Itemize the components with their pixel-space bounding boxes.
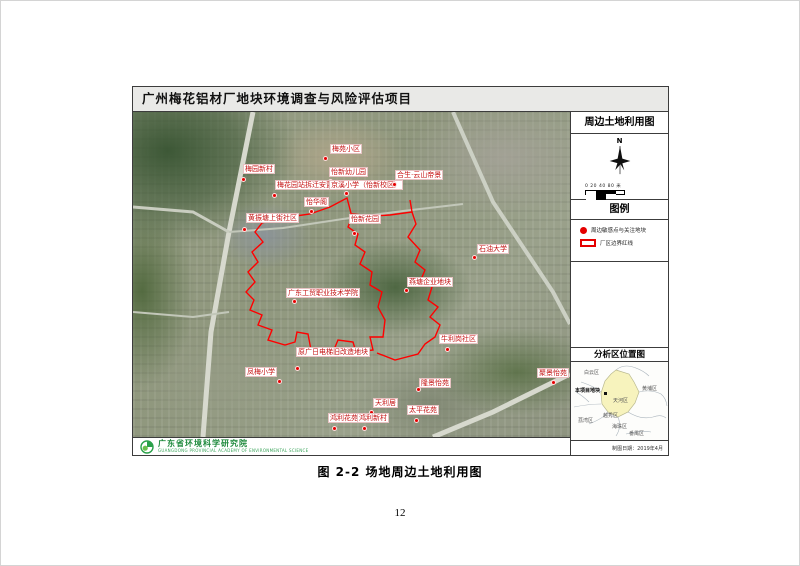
map-label: 黄振塘上街社区 [246, 213, 299, 223]
locator-district-label: 天河区 [613, 399, 628, 404]
map-column: 梅苑小区梅园新村怡新幼儿园梅花园站拆迁安置房京溪小学（怡新校区）合生·云山帝景怡… [133, 112, 570, 455]
locator-site-label: 本项目地块 [575, 389, 600, 394]
map-lines-layer [133, 112, 570, 437]
map-label: 天利居 [373, 398, 398, 408]
location-marker-icon [392, 182, 397, 187]
locator-district-label: 黄埔区 [642, 387, 657, 392]
map-sidebar: 周边土地利用图 N 0 20 40 80 米 图例 [570, 112, 668, 455]
map-label: 隆景怡苑 [419, 378, 451, 388]
location-marker-icon [352, 231, 357, 236]
map-label: 鸿利新村 [357, 413, 389, 423]
map-label: 鸿利花苑 [328, 413, 360, 423]
figure-frame: 广州梅花铝材厂地块环境调查与风险评估项目 [132, 86, 669, 456]
compass-box: N 0 20 40 80 米 [571, 134, 668, 200]
document-page: 广州梅花铝材厂地块环境调查与风险评估项目 [0, 0, 800, 566]
locator-title: 分析区位置图 [571, 347, 668, 362]
location-marker-icon [414, 418, 419, 423]
sidebar-map-title: 周边土地利用图 [571, 112, 668, 134]
scale-text: 0 20 40 80 米 [585, 183, 625, 189]
location-marker-icon [272, 193, 277, 198]
map-label: 聚景怡苑 [537, 368, 569, 378]
location-marker-icon [472, 255, 477, 260]
legend-red-dot-icon [580, 227, 587, 234]
map-label: 合生·云山帝景 [395, 170, 443, 180]
legend-body: 周边敏感点与关注地块 厂区边界红线 [571, 220, 668, 262]
locator-map: 白云区本项目地块天河区黄埔区越秀区荔湾区海珠区番禺区 [571, 362, 668, 440]
figure-caption: 图 2-2 场地周边土地利用图 [1, 463, 799, 480]
legend-item-sensitive-point: 周边敏感点与关注地块 [580, 226, 668, 234]
scale-bar: 0 20 40 80 米 [585, 183, 625, 195]
location-marker-icon [295, 366, 300, 371]
location-marker-icon [344, 191, 349, 196]
legend-item-label: 厂区边界红线 [600, 239, 633, 247]
locator-district-label: 白云区 [584, 371, 599, 376]
map-label: 燕塘企业地块 [407, 277, 453, 287]
north-label: N [617, 137, 623, 145]
location-marker-icon [242, 227, 247, 232]
locator-district-label: 番禺区 [629, 432, 644, 437]
location-marker-icon [323, 156, 328, 161]
map-label: 凤梅小学 [245, 367, 277, 377]
location-marker-icon [332, 426, 337, 431]
institute-name: 广东省环境科学研究院 [158, 440, 308, 448]
institute-logo-icon [140, 440, 154, 454]
locator-district-label: 海珠区 [612, 425, 627, 430]
location-marker-icon [416, 387, 421, 392]
location-marker-icon [277, 379, 282, 384]
legend-item-label: 周边敏感点与关注地块 [591, 226, 646, 234]
sidebar-spacer [571, 262, 668, 347]
map-label: 原广日电梯旧改造地块 [296, 347, 370, 357]
map-label: 梅苑小区 [330, 144, 362, 154]
figure-title: 广州梅花铝材厂地块环境调查与风险评估项目 [133, 87, 668, 112]
location-marker-icon [241, 177, 246, 182]
map-label: 太平花苑 [407, 405, 439, 415]
locator-district-label: 荔湾区 [578, 419, 593, 424]
location-marker-icon [362, 426, 367, 431]
location-marker-icon [551, 380, 556, 385]
locator-district-label: 越秀区 [603, 414, 618, 419]
map-label: 怡新幼儿园 [329, 167, 368, 177]
map-label: 石油大学 [477, 244, 509, 254]
legend-item-boundary: 厂区边界红线 [580, 239, 668, 247]
legend-red-rect-icon [580, 239, 596, 247]
site-marker-icon [604, 392, 607, 395]
map-label: 怡华阁 [304, 197, 329, 207]
legend-title: 图例 [571, 200, 668, 220]
location-marker-icon [445, 347, 450, 352]
satellite-map: 梅苑小区梅园新村怡新幼儿园梅花园站拆迁安置房京溪小学（怡新校区）合生·云山帝景怡… [133, 112, 570, 437]
map-label: 怡新花园 [349, 214, 381, 224]
map-footer: 广东省环境科学研究院 GUANGDONG PROVINCIAL ACADEMY … [133, 437, 570, 455]
scale-bar-graphic [585, 190, 625, 195]
page-number: 12 [1, 507, 799, 519]
location-marker-icon [292, 299, 297, 304]
location-marker-icon [309, 209, 314, 214]
compass-rose-icon [605, 145, 635, 177]
institute-subtitle: GUANGDONG PROVINCIAL ACADEMY OF ENVIRONM… [158, 449, 308, 453]
map-label: 梅园新村 [243, 164, 275, 174]
map-label: 牛利岗社区 [439, 334, 478, 344]
map-label: 广东工贸职业技术学院 [286, 288, 360, 298]
location-marker-icon [404, 288, 409, 293]
